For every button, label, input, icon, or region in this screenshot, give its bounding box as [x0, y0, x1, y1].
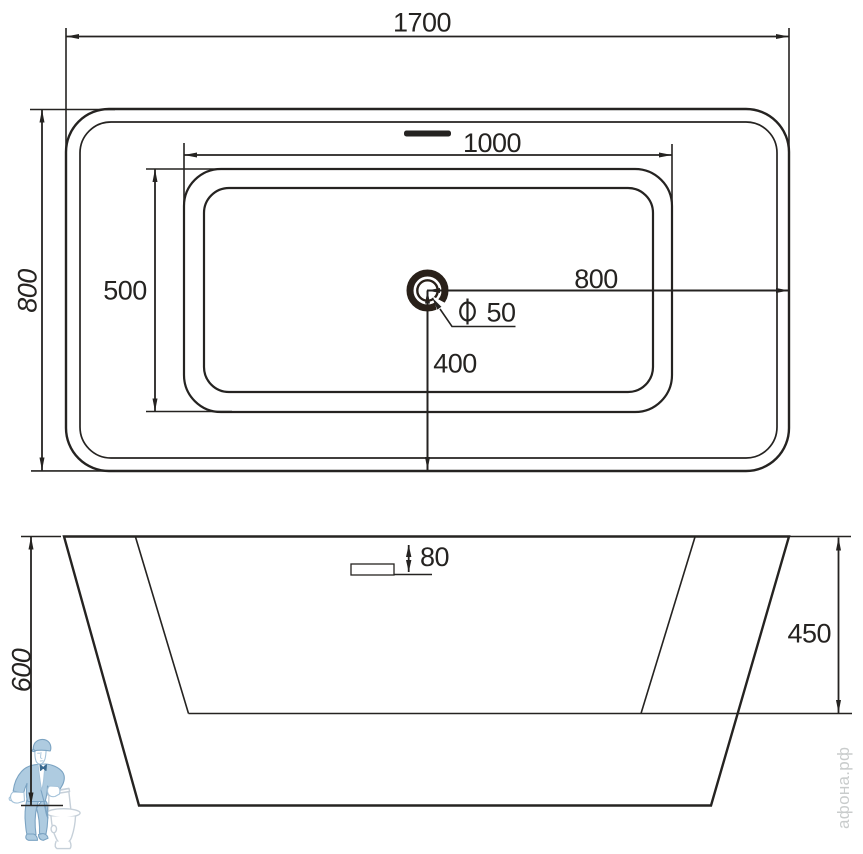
svg-text:800: 800	[574, 264, 618, 294]
svg-text:500: 500	[103, 276, 147, 306]
svg-text:80: 80	[420, 542, 449, 572]
svg-text:800: 800	[13, 269, 43, 313]
svg-text:450: 450	[787, 619, 831, 649]
svg-text:1700: 1700	[393, 8, 451, 38]
svg-text:400: 400	[433, 349, 477, 379]
svg-text:50: 50	[486, 298, 515, 328]
svg-text:1000: 1000	[463, 128, 521, 158]
svg-text:600: 600	[7, 648, 37, 692]
svg-text:афона.рф: афона.рф	[834, 747, 853, 829]
